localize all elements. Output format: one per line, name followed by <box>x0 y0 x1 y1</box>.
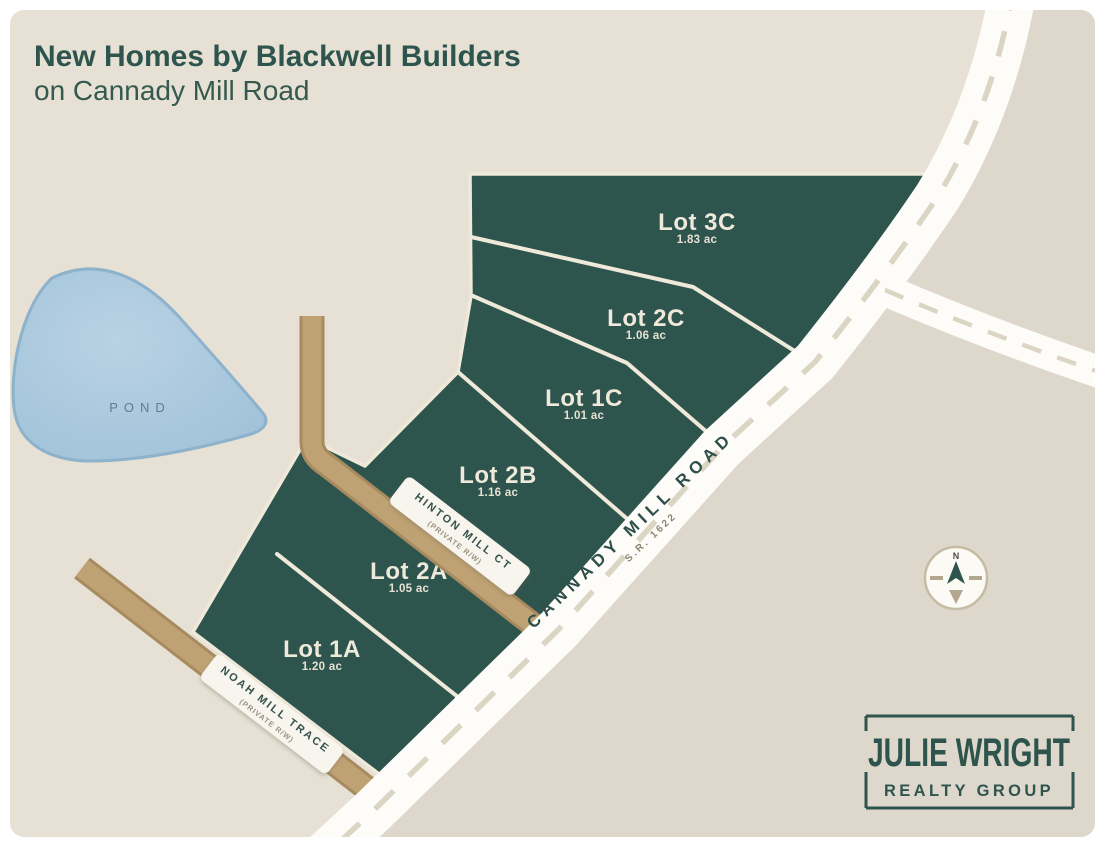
logo-tagline: REALTY GROUP <box>884 781 1054 800</box>
compass-east-dash-icon <box>969 576 982 580</box>
lot-1c-name: Lot 1C <box>545 385 623 412</box>
title-line2: on Cannady Mill Road <box>34 75 310 106</box>
lot-1a-acreage: 1.20 ac <box>302 661 343 673</box>
logo-name: JULIE WRIGHT <box>868 731 1070 775</box>
lot-2b-name: Lot 2B <box>459 462 537 489</box>
compass-west-dash-icon <box>930 576 943 580</box>
title-line1: New Homes by Blackwell Builders <box>34 40 521 73</box>
lot-1c-acreage: 1.01 ac <box>564 410 605 422</box>
plat-map-page: POND Lot 3C 1.83 ac Lot 2C 1.06 ac Lot 1… <box>0 0 1105 848</box>
lot-3c-acreage: 1.83 ac <box>677 234 718 246</box>
lot-2c-acreage: 1.06 ac <box>626 330 667 342</box>
lot-1a-name: Lot 1A <box>283 636 361 663</box>
pond-label: POND <box>109 400 171 415</box>
lot-2a-acreage: 1.05 ac <box>389 583 430 595</box>
lot-2b-acreage: 1.16 ac <box>478 487 519 499</box>
plat-map: POND Lot 3C 1.83 ac Lot 2C 1.06 ac Lot 1… <box>0 0 1105 848</box>
lot-3c-name: Lot 3C <box>658 209 736 236</box>
compass: N <box>925 547 987 609</box>
lot-2c-name: Lot 2C <box>607 305 685 332</box>
compass-north-label: N <box>953 551 960 561</box>
